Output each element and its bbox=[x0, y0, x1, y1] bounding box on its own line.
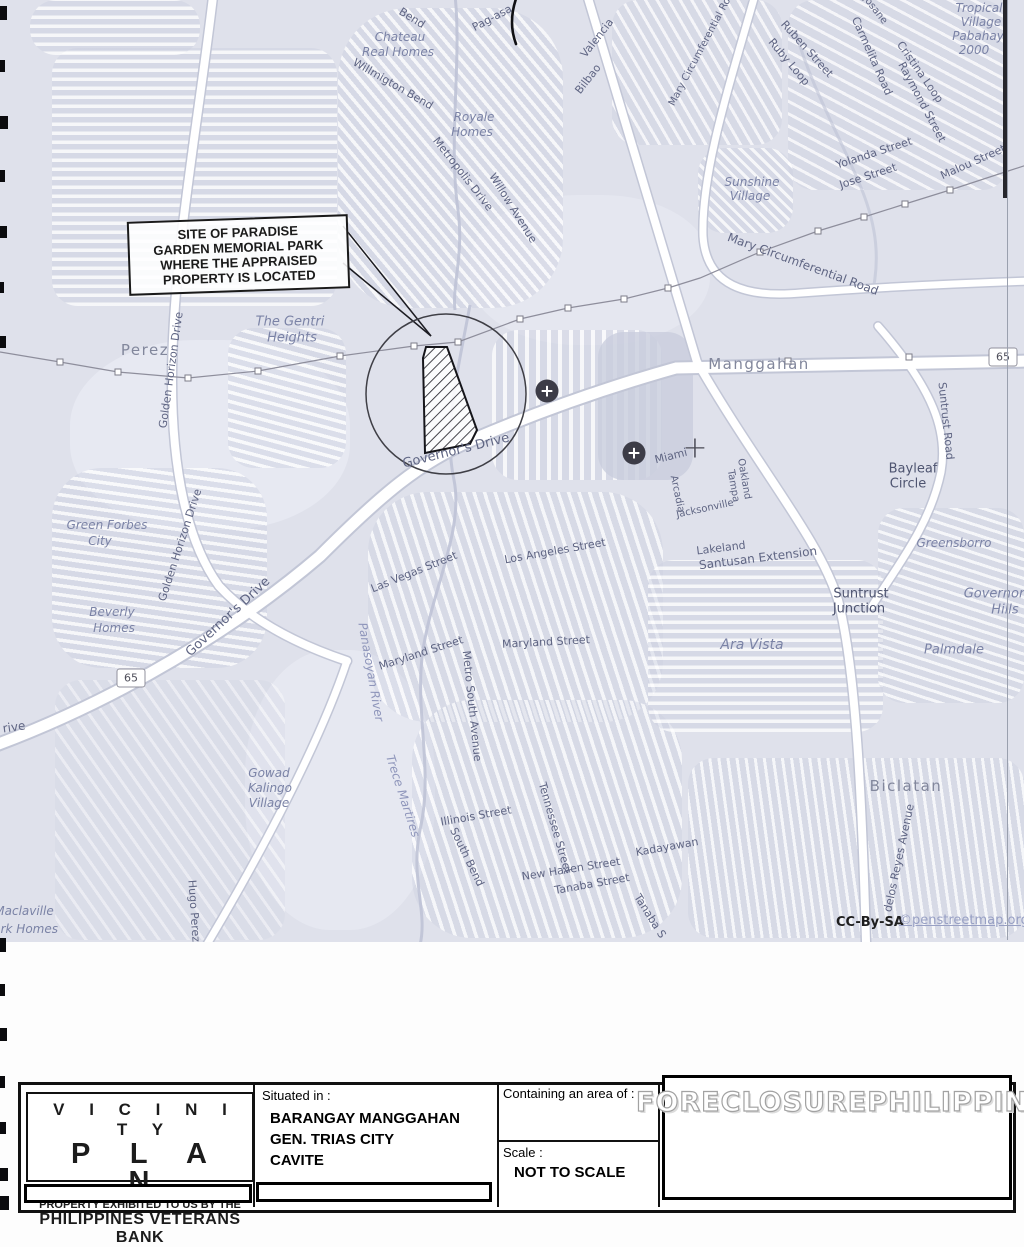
map-label-green-forbes: Green Forbes bbox=[67, 518, 148, 532]
scan-edge-light bbox=[1007, 0, 1008, 940]
map-label-city: City bbox=[88, 534, 112, 548]
map-label-valencia: Valencia bbox=[578, 16, 617, 60]
map-label-chateau: Chateau bbox=[375, 30, 425, 44]
route-shield-65: 65 bbox=[117, 669, 146, 688]
map-label-real-homes: Real Homes bbox=[362, 45, 434, 59]
map-label-palmdale: Palmdale bbox=[924, 643, 984, 658]
watermark-text: FORECLOSUREPHILIPPINES.COM bbox=[636, 1087, 1024, 1118]
vicinity-plan-cell: V I C I N I T Y P L A N PROPERTY EXHIBIT… bbox=[26, 1092, 254, 1182]
scale-label: Scale : bbox=[503, 1145, 543, 1160]
subdivision-block bbox=[52, 468, 267, 668]
map-label-perez: Perez bbox=[121, 341, 169, 359]
map-label-royale: Royale bbox=[454, 110, 495, 124]
map-label-hills: Hills bbox=[991, 603, 1018, 618]
map-label-bayleaf: Bayleaf bbox=[889, 462, 938, 477]
vicinity-map: BendPag-asaValenciaBilbaoWillmigton Bend… bbox=[0, 0, 1024, 942]
map-label-the-gentri: The Gentri bbox=[256, 315, 325, 330]
map-label-sunshine: Sunshine bbox=[724, 175, 779, 189]
map-label-homes: Homes bbox=[93, 621, 135, 635]
situated-address: BARANGAY MANGGAHAN GEN. TRIAS CITY CAVIT… bbox=[270, 1108, 460, 1171]
map-label-governor: Governor bbox=[964, 587, 1024, 602]
map-label-rive: rive bbox=[2, 718, 26, 735]
route-shield-65: 65 bbox=[989, 348, 1018, 367]
subdivision-block bbox=[688, 758, 1024, 938]
scan-mark bbox=[0, 60, 5, 72]
scanned-vicinity-plan-page: { "map": { "callout": { "lines": ["SITE … bbox=[0, 0, 1024, 1216]
map-label-biclatan: Biclatan bbox=[870, 777, 943, 795]
map-label-park-homes: Park Homes bbox=[0, 922, 58, 936]
vicinity-title: V I C I N I T Y bbox=[28, 1100, 252, 1140]
hospital-marker-icon: + bbox=[623, 442, 646, 465]
scan-mark bbox=[0, 226, 7, 238]
openstreetmap-link[interactable]: ©penstreetmap.org bbox=[899, 913, 1024, 928]
scale-value: NOT TO SCALE bbox=[514, 1164, 625, 1181]
map-label-tropical: Tropical bbox=[956, 1, 1003, 15]
map-label-heights: Heights bbox=[267, 331, 317, 346]
area-label: Containing an area of : bbox=[503, 1086, 635, 1101]
scan-mark bbox=[0, 116, 8, 129]
map-label-village: Village bbox=[961, 15, 1002, 29]
map-label-maclaville: Maclaville bbox=[0, 904, 54, 918]
scan-mark bbox=[0, 6, 7, 20]
scan-mark bbox=[0, 1122, 6, 1134]
empty-field-box bbox=[256, 1182, 492, 1202]
map-label-junction: Junction bbox=[833, 602, 885, 617]
scan-mark bbox=[0, 984, 5, 996]
map-label-kalingo: Kalingo bbox=[248, 781, 292, 795]
scan-mark bbox=[0, 1076, 5, 1088]
scan-mark bbox=[0, 1168, 8, 1181]
map-label-bilbao: Bilbao bbox=[572, 62, 603, 97]
address-line: BARANGAY MANGGAHAN bbox=[270, 1108, 460, 1129]
map-attribution-text: CC-By-SA bbox=[836, 915, 904, 930]
hospital-marker-icon: + bbox=[536, 380, 559, 403]
scan-edge-dark bbox=[1003, 0, 1007, 198]
scan-mark bbox=[0, 170, 5, 182]
map-label-village: Village bbox=[730, 189, 771, 203]
map-label-circle: Circle bbox=[890, 477, 927, 492]
subdivision-block bbox=[228, 328, 346, 468]
situated-in-label: Situated in : bbox=[262, 1088, 331, 1103]
cross-marker-icon: + bbox=[682, 431, 707, 466]
subdivision-block bbox=[368, 492, 663, 722]
scan-mark bbox=[0, 938, 6, 952]
map-label-suntrust-road: Suntrust Road bbox=[935, 382, 956, 461]
site-callout-box: SITE OF PARADISE GARDEN MEMORIAL PARK WH… bbox=[127, 214, 350, 296]
map-label-pabahay: Pabahay bbox=[952, 29, 1004, 43]
scan-mark bbox=[0, 1028, 7, 1041]
map-label-village: Village bbox=[249, 796, 290, 810]
bank-name: PHILIPPINES VETERANS BANK bbox=[28, 1211, 252, 1247]
scan-mark bbox=[0, 282, 4, 293]
address-line: GEN. TRIAS CITY bbox=[270, 1129, 460, 1150]
subdivision-block bbox=[30, 0, 200, 55]
table-divider bbox=[497, 1082, 499, 1207]
table-divider bbox=[497, 1140, 658, 1142]
map-label-ara-vista: Ara Vista bbox=[720, 637, 783, 653]
subdivision-block bbox=[55, 680, 285, 940]
scan-mark bbox=[0, 336, 6, 348]
scan-mark bbox=[0, 1196, 9, 1210]
map-label-mary-circumferential-road: Mary Circumferential Road bbox=[726, 230, 881, 298]
site-hatched-polygon bbox=[423, 347, 477, 453]
map-label-greensborro: Greensborro bbox=[916, 536, 991, 550]
map-label-beverly: Beverly bbox=[89, 605, 134, 619]
map-label-2000: 2000 bbox=[959, 43, 990, 57]
map-label-manggahan: Manggahan bbox=[708, 355, 810, 373]
map-label-gowad: Gowad bbox=[248, 766, 289, 780]
empty-field-box bbox=[24, 1184, 252, 1203]
address-line: CAVITE bbox=[270, 1150, 460, 1171]
map-label-homes: Homes bbox=[451, 125, 493, 139]
map-label-suntrust: Suntrust bbox=[833, 587, 888, 602]
subdivision-block bbox=[612, 0, 782, 145]
